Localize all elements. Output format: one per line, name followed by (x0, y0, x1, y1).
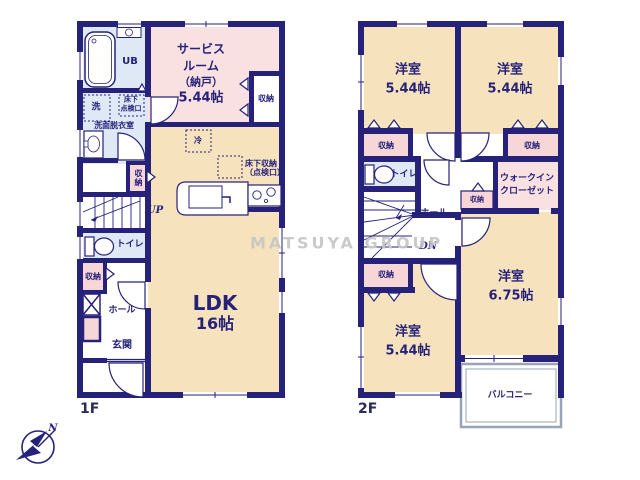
label-closet-ne: 収納 (524, 142, 540, 150)
watermark: MATSUYA GROUP (250, 234, 443, 253)
bathtub-icon (85, 32, 115, 87)
room-size-ldk: 16帖 (196, 316, 234, 332)
room-label-bedroom-se: 洋室 (498, 271, 524, 284)
bedroom-nw-door (427, 133, 455, 161)
room-label-wic-1: ウォークイン (500, 175, 554, 184)
room-size-service: 5.44帖 (178, 92, 223, 105)
floor2-tag: 2F (358, 402, 377, 416)
closet-mid-door-marker (472, 183, 484, 191)
room-label-ub: UB (122, 57, 138, 67)
room-label-service-3: （納戸） (179, 77, 223, 88)
stove-icon (248, 185, 281, 206)
room-label-hall-2f: ホール (420, 210, 447, 219)
compass-north-label: N (48, 424, 57, 434)
room-label-toilet-1f: トイレ (116, 241, 143, 250)
floorplan-canvas: UB サービス ルーム （納戸） 5.44帖 収納 洗 床下 点検口 洗面脱衣室… (0, 0, 640, 480)
room-label-service-2: ルーム (183, 60, 219, 72)
room-label-bedroom-nw: 洋室 (395, 64, 421, 77)
room-label-service-1: サービス (177, 43, 225, 55)
label-service-closet: 収納 (258, 95, 274, 103)
room-label-toilet-2f: トイレ (390, 171, 417, 180)
room-size-bedroom-ne: 5.44帖 (487, 83, 532, 96)
room-size-bedroom-sw: 5.44帖 (385, 345, 430, 358)
room-size-bedroom-se: 6.75帖 (488, 290, 533, 303)
ub-sink-icon (117, 28, 141, 38)
toilet-2f-door (424, 160, 449, 185)
label-underfloor-access-2: 点検口 (121, 106, 142, 113)
room-label-hall-1f: ホール (108, 307, 135, 316)
label-underfloor-storage-1: 床下収納 (245, 160, 277, 168)
room-label-balcony: バルコニー (488, 392, 533, 401)
entry-shoe-box (83, 294, 100, 315)
label-closet-nw: 収納 (378, 142, 394, 150)
room-label-wic-2: クローゼット (500, 188, 554, 197)
compass-icon (16, 430, 55, 463)
toilet-2f-icon (365, 165, 394, 184)
toilet-1f-icon (85, 237, 114, 256)
label-hall-closet: 収納 (134, 169, 142, 187)
kitchen-counter-icon (177, 182, 248, 215)
label-closet-sw: 収納 (378, 271, 394, 279)
floor1-tag: 1F (80, 402, 99, 416)
room-label-bedroom-sw: 洋室 (395, 326, 421, 339)
entry-closet-door-marker (106, 268, 114, 280)
label-underfloor-access-1: 床下 (124, 97, 138, 104)
room-label-ldk: LDK (193, 293, 238, 313)
label-closet-mid: 収納 (470, 197, 484, 204)
label-underfloor-storage-2: （点検口） (245, 169, 285, 177)
washbasin-icon (84, 131, 103, 158)
floor2-fixtures (365, 165, 394, 184)
room-label-entrance: 玄関 (112, 341, 132, 351)
floor1-stairs (83, 197, 140, 228)
room-size-bedroom-nw: 5.44帖 (385, 83, 430, 96)
label-fridge: 冷 (194, 137, 202, 145)
label-stairs-up: UP (147, 206, 163, 216)
room-label-washroom: 洗面脱衣室 (94, 122, 134, 130)
room-label-bedroom-ne: 洋室 (497, 64, 523, 77)
label-entry-closet: 収納 (85, 273, 101, 281)
front-door (109, 363, 143, 397)
label-laundry: 洗 (91, 104, 100, 113)
